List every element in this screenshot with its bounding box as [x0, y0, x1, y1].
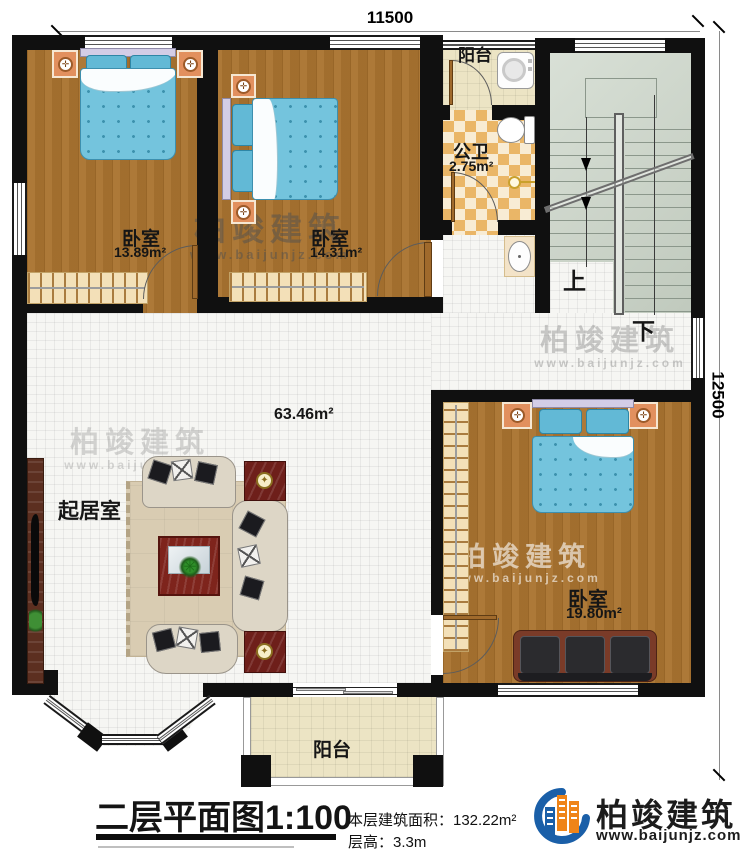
- stair-treads-right: [625, 117, 691, 314]
- balcony-column: [413, 755, 443, 787]
- wardrobe-rail: [30, 287, 145, 289]
- wall: [498, 220, 535, 235]
- lamp-icon: ✛: [183, 57, 198, 72]
- balcony-column: [241, 755, 271, 787]
- brand-url: www.baijunjz.com: [596, 827, 741, 844]
- wall: [443, 220, 452, 235]
- bed-headboard: [532, 399, 634, 408]
- lamp-icon: ✛: [510, 408, 525, 423]
- toilet-tank: [524, 116, 535, 144]
- living-room-label: 起居室: [58, 495, 121, 525]
- title-underline: [96, 834, 336, 840]
- washer-drum: [502, 58, 526, 82]
- brand-logo-icon: [534, 787, 590, 849]
- bench-sofa: [513, 630, 657, 682]
- floor-plan-canvas: 11500 12500 柏竣建筑 www.baijunjz.com 柏竣建筑 w…: [0, 0, 750, 859]
- bedroom2-area: 14.31m²: [310, 244, 362, 260]
- right-dimension-label: 12500: [708, 371, 728, 418]
- wall: [691, 38, 705, 318]
- wall: [443, 105, 450, 120]
- nightstand: ✛: [231, 200, 256, 224]
- nightstand: ✛: [52, 50, 78, 78]
- wall: [12, 35, 27, 183]
- table-lamp-icon: ✦: [256, 643, 273, 660]
- plan-title-text: 二层平面图: [95, 799, 265, 837]
- lamp-icon: ✛: [236, 205, 251, 220]
- sink-drain: [518, 255, 521, 258]
- wall: [535, 48, 550, 313]
- bedroom3-area: 19.80m²: [566, 605, 622, 622]
- plant-icon: ✳: [177, 554, 203, 580]
- stair-landing-outline: [585, 78, 657, 118]
- bed-quilt: [532, 436, 634, 513]
- window: [575, 38, 665, 53]
- sliding-door-leaf: [343, 691, 393, 694]
- sofa-cushion: [194, 461, 218, 485]
- pillow: [539, 409, 582, 434]
- wall: [431, 683, 498, 697]
- wall: [197, 48, 218, 297]
- door-leaf: [443, 615, 497, 620]
- nightstand: ✛: [502, 402, 532, 429]
- window: [691, 318, 705, 378]
- washing-machine: [497, 52, 534, 89]
- door-leaf: [449, 60, 453, 105]
- stair-direction-arrow: [581, 158, 591, 171]
- nightstand: ✛: [177, 50, 203, 78]
- top-dimension-line: [57, 31, 700, 32]
- sofa-cushion: [175, 626, 198, 649]
- stair-guide-line-down: [654, 95, 655, 315]
- side-table: ✦: [244, 631, 286, 673]
- nightstand: ✛: [231, 74, 256, 98]
- bed-sheet: [573, 437, 634, 458]
- bed-sheet: [81, 69, 176, 92]
- door-leaf: [192, 245, 198, 299]
- sofa-cushion: [199, 631, 221, 653]
- window: [498, 683, 638, 697]
- toilet-bowl: [497, 117, 525, 143]
- towel-ring-bar: [520, 181, 535, 183]
- sliding-door-leaf: [296, 688, 346, 691]
- bench-cushion: [565, 636, 605, 674]
- balcony-top-label: 阳台: [458, 41, 492, 66]
- bedroom1-area: 13.89m²: [114, 244, 166, 260]
- stairs-down-label: 下: [632, 312, 655, 346]
- table-lamp-icon: ✦: [256, 472, 273, 489]
- bay-window: [102, 734, 164, 745]
- window: [330, 35, 420, 50]
- plan-scale: 1:100: [265, 799, 352, 837]
- stairs-up-label: 上: [563, 262, 586, 296]
- wardrobe-rail: [232, 286, 364, 288]
- washer-knob: [528, 59, 532, 63]
- sofa-cushion: [237, 544, 261, 568]
- top-dimension-label: 11500: [350, 8, 430, 28]
- sink-counter: [504, 236, 535, 277]
- lamp-icon: ✛: [636, 408, 651, 423]
- title-underline-thin: [98, 846, 294, 848]
- coffee-table: ✳: [158, 536, 220, 596]
- balcony-bottom-label: 阳台: [313, 735, 351, 762]
- plant-icon: [29, 608, 42, 636]
- window: [12, 183, 27, 255]
- wall: [431, 390, 443, 615]
- sliding-door: [293, 687, 397, 695]
- lamp-icon: ✛: [58, 57, 73, 72]
- lamp-icon: ✛: [236, 79, 251, 94]
- wall: [691, 378, 705, 697]
- dimension-tick: [692, 15, 705, 28]
- wall: [172, 35, 330, 50]
- bed-quilt: [252, 98, 338, 200]
- wall: [638, 683, 705, 697]
- floor-area-note: 本层建筑面积：132.22m²: [348, 809, 516, 830]
- bathroom-area: 2.75m²: [449, 158, 493, 174]
- door-leaf: [451, 172, 455, 222]
- stair-handrail: [614, 113, 624, 315]
- floor-height-note: 层高：3.3m: [348, 831, 426, 852]
- bench-front: [518, 673, 652, 681]
- bench-cushion: [610, 636, 650, 674]
- sofa-cushion: [171, 459, 194, 482]
- bed-sheet: [253, 99, 278, 200]
- wall: [420, 48, 443, 240]
- bed-headboard: [222, 98, 231, 200]
- pillow: [586, 409, 629, 434]
- bench-cushion: [520, 636, 560, 674]
- wardrobe-rail: [455, 405, 457, 649]
- bed-quilt: [80, 68, 176, 160]
- wall: [203, 683, 293, 697]
- stair-direction-arrow: [581, 197, 591, 210]
- washer-knob: [528, 67, 532, 71]
- plan-title: 二层平面图1:100: [95, 790, 352, 839]
- side-table: ✦: [244, 461, 286, 501]
- living-room-area: 63.46m²: [274, 406, 334, 424]
- wall: [12, 255, 27, 670]
- tv: [31, 514, 39, 606]
- door-leaf: [424, 242, 432, 297]
